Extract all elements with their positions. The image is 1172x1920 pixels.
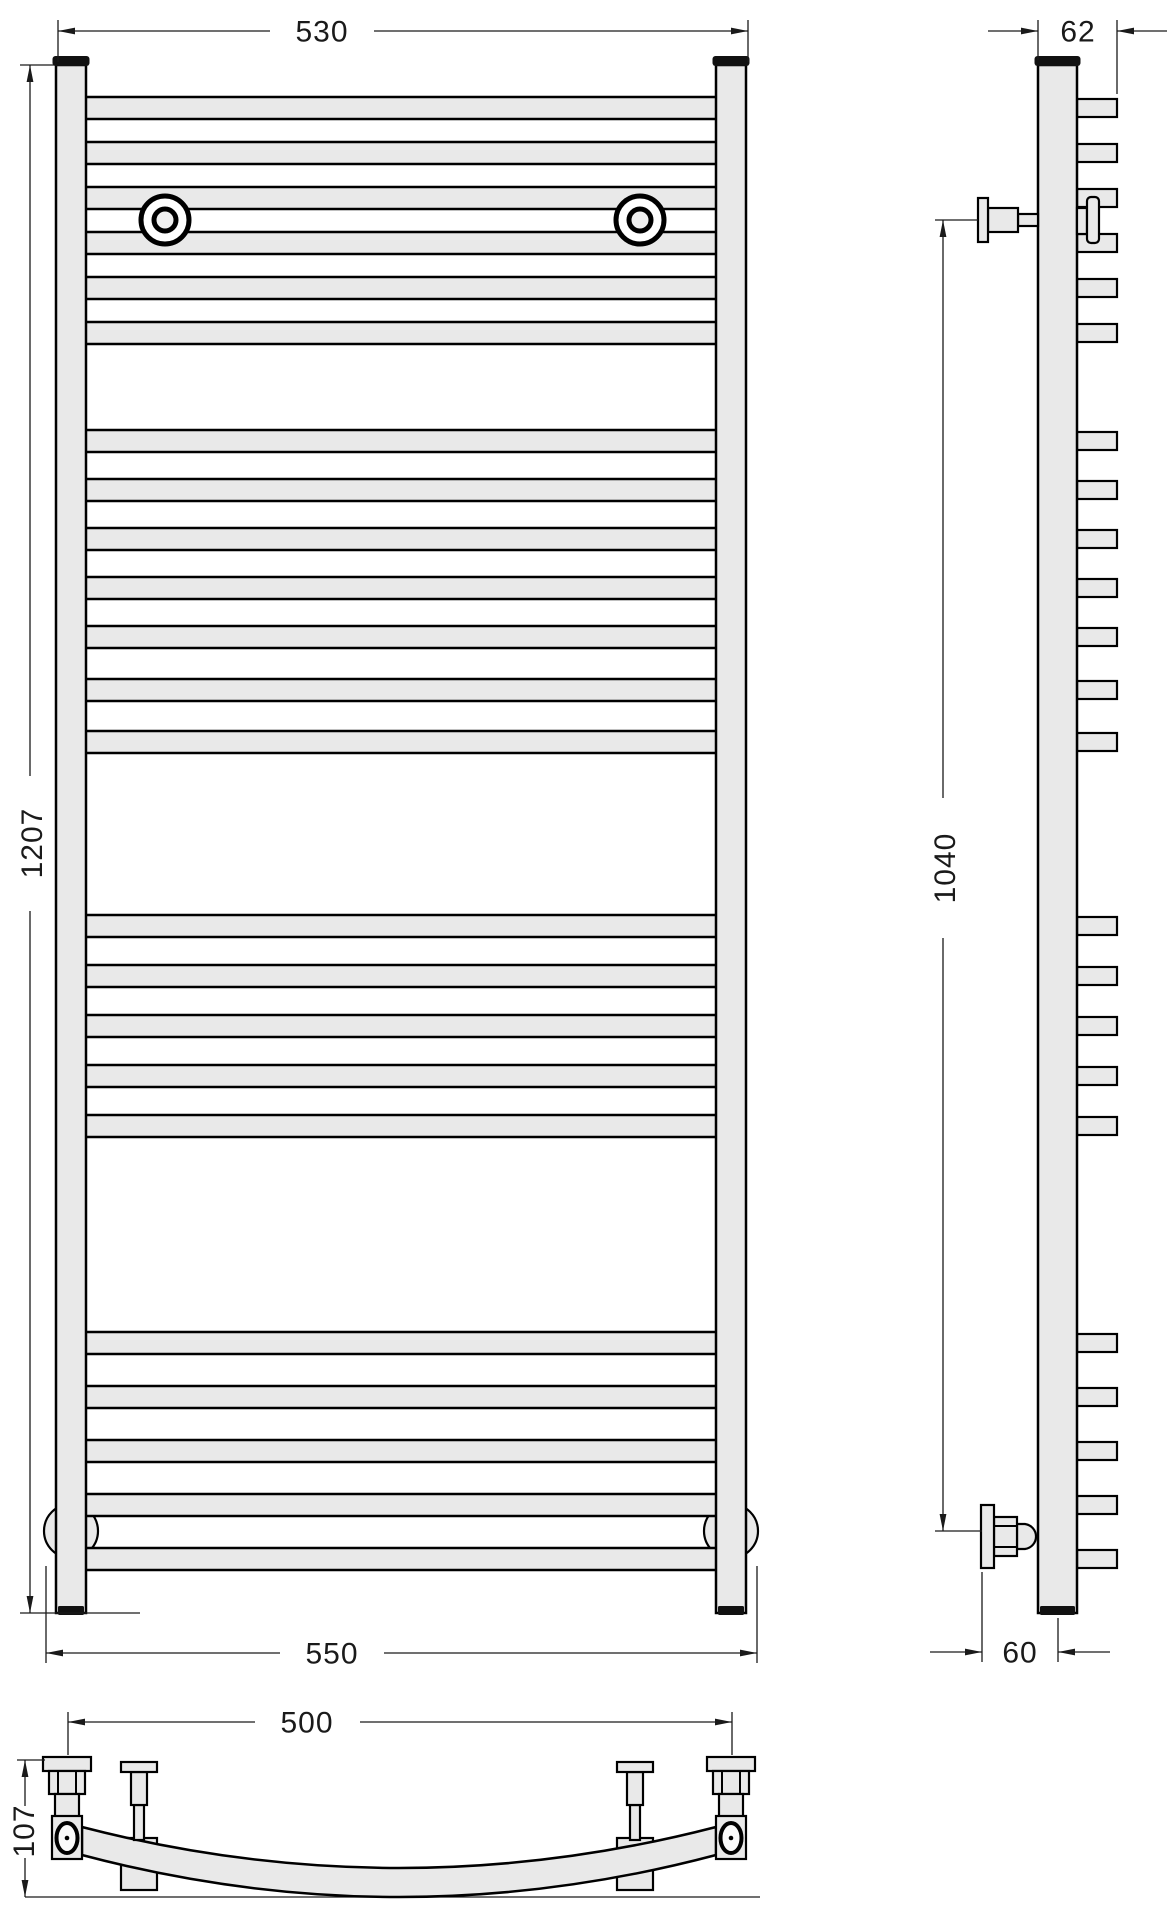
plan-view — [25, 1757, 760, 1897]
side-rung-stub — [1077, 628, 1117, 646]
wall-mount-inner-ring — [154, 209, 176, 231]
front-right-post-top-cap — [713, 56, 750, 66]
front-rung — [84, 1440, 718, 1462]
front-rung — [84, 1386, 718, 1408]
dim-label-500: 500 — [280, 1707, 333, 1740]
dim-front-width-bottom: 550 — [46, 1566, 757, 1671]
front-right-post-bottom-cap — [718, 1606, 744, 1615]
side-rung-stub — [1077, 481, 1117, 499]
side-rung-stub — [1077, 530, 1117, 548]
front-rung — [84, 679, 718, 701]
top-fitting-bar — [1087, 197, 1099, 243]
side-rung-stub — [1077, 324, 1117, 342]
plan-left-wall-bracket — [121, 1762, 157, 1840]
front-rung — [84, 915, 718, 937]
side-rung-stub — [1077, 1496, 1117, 1514]
front-rung — [84, 965, 718, 987]
dim-label-62: 62 — [1060, 16, 1095, 49]
dim-label-550: 550 — [305, 1638, 358, 1671]
front-view — [44, 56, 758, 1615]
foot-hex-nut — [49, 1771, 85, 1794]
wall-mount-inner-ring — [629, 209, 651, 231]
dim-side-bracket-span: 1040 — [929, 220, 982, 1531]
side-rung-stub — [1077, 432, 1117, 450]
dim-label-530: 530 — [295, 16, 348, 49]
side-rung-stub — [1077, 681, 1117, 699]
dim-label-107: 107 — [8, 1804, 41, 1857]
side-rung-stub — [1077, 1550, 1117, 1568]
front-left-post — [56, 65, 86, 1613]
side-post-top-cap — [1035, 56, 1081, 66]
bracket-wall-plate — [617, 1762, 653, 1772]
foot-neck — [719, 1794, 743, 1817]
foot-neck — [55, 1794, 79, 1817]
top-bracket-wall-flange — [978, 198, 988, 242]
dim-plan-curve-depth: 107 — [8, 1760, 45, 1897]
foot-center-dot — [65, 1836, 70, 1841]
side-rung-stub — [1077, 1067, 1117, 1085]
bracket-thin-stem — [134, 1805, 144, 1840]
front-rung — [84, 97, 718, 119]
foot-wall-plate — [707, 1757, 755, 1771]
front-rungs — [84, 97, 718, 1570]
side-rung-stub — [1077, 1442, 1117, 1460]
foot-wall-plate — [43, 1757, 91, 1771]
technical-drawing-page: 530 1207 550 62 1040 — [0, 0, 1172, 1920]
side-rung-stubs — [1077, 99, 1117, 1568]
bracket-thin-stem — [630, 1805, 640, 1840]
dim-side-wall-offset: 60 — [930, 1572, 1110, 1670]
front-rung — [84, 1494, 718, 1516]
front-rung — [84, 1065, 718, 1087]
top-fitting-connector — [1077, 208, 1087, 234]
front-rung — [84, 577, 718, 599]
side-rung-stub — [1077, 1334, 1117, 1352]
side-view — [978, 56, 1117, 1615]
top-bracket-arm — [988, 208, 1018, 232]
side-rung-stub — [1077, 1017, 1117, 1035]
towel-radiator-drawing: 530 1207 550 62 1040 — [0, 0, 1172, 1920]
bracket-wall-plate — [121, 1762, 157, 1772]
side-post — [1038, 65, 1077, 1613]
front-rung — [84, 277, 718, 299]
front-rung — [84, 528, 718, 550]
side-bottom-bracket — [981, 1505, 1036, 1568]
side-rung-stub — [1077, 144, 1117, 162]
bracket-stem — [131, 1772, 147, 1805]
front-rung — [84, 142, 718, 164]
side-rung-stub — [1077, 1117, 1117, 1135]
side-rung-stub — [1077, 917, 1117, 935]
plan-right-wall-bracket — [617, 1762, 653, 1840]
foot-center-dot — [729, 1836, 734, 1841]
dim-plan-mount-span: 500 — [68, 1707, 732, 1756]
bottom-bracket-nut — [994, 1517, 1017, 1556]
side-rung-stub — [1077, 99, 1117, 117]
side-rung-stub — [1077, 279, 1117, 297]
front-rung — [84, 322, 718, 344]
foot-hex-nut — [713, 1771, 749, 1794]
dim-front-width-top: 530 — [58, 16, 748, 63]
dim-label-1040: 1040 — [929, 833, 962, 904]
front-rung — [84, 479, 718, 501]
front-right-post — [716, 65, 746, 1613]
side-post-bottom-cap — [1040, 1606, 1075, 1615]
side-rung-stub — [1077, 967, 1117, 985]
bottom-bracket-cylinder-cap — [1017, 1524, 1036, 1549]
side-rung-stub — [1077, 1388, 1117, 1406]
front-rung — [84, 1015, 718, 1037]
dim-label-1207: 1207 — [16, 808, 49, 879]
front-rung — [84, 1332, 718, 1354]
side-rung-stub — [1077, 733, 1117, 751]
front-rung — [84, 430, 718, 452]
front-rung — [84, 731, 718, 753]
front-rung — [84, 626, 718, 648]
bracket-stem — [627, 1772, 643, 1805]
front-rung — [84, 1115, 718, 1137]
front-rung — [84, 1548, 718, 1570]
side-rung-stub — [1077, 579, 1117, 597]
bottom-bracket-wall-flange — [981, 1505, 994, 1568]
dim-label-60: 60 — [1002, 1637, 1037, 1670]
top-bracket-stem — [1018, 214, 1038, 226]
